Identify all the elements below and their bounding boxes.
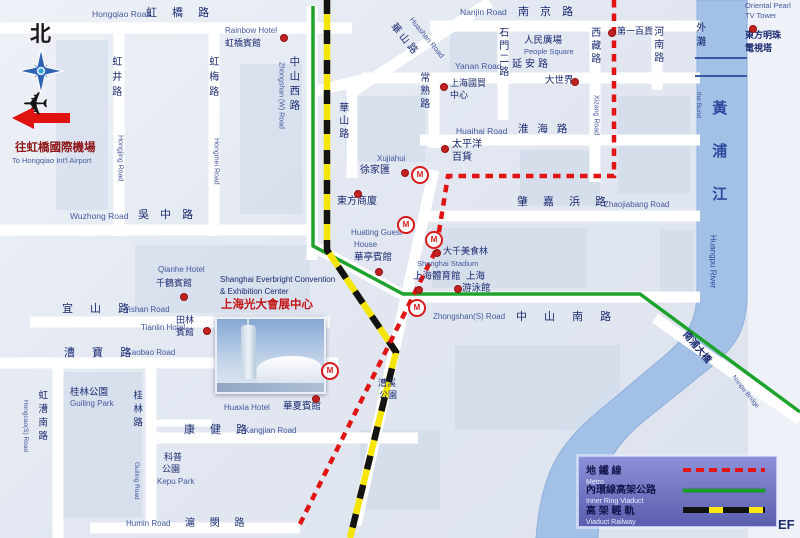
legend-row-rail: 高 架 輕 軌 Viaduct Railway — [586, 501, 769, 523]
legend-row-ring: 內環線高架公路 Inner Ring Viaduct — [586, 480, 769, 502]
watermark: EF — [778, 517, 795, 532]
road-label: Xizang Road — [592, 95, 600, 135]
poi-kepu-park-en: Kepu Park — [157, 478, 194, 487]
poi-pacific-cn1: 太平洋 — [452, 140, 482, 151]
road-label: 肇 嘉 浜 路 — [517, 197, 612, 209]
metro-station-icon: M — [397, 216, 415, 234]
poi-stadium-en: Shanghai Stadium — [417, 260, 478, 268]
poi-guilin-park-cn: 桂林公園 — [70, 388, 108, 398]
poi-dot — [749, 25, 757, 33]
poi-rainbow-hotel-cn: 虹橋賓館 — [225, 39, 261, 49]
legend-rail-en: Viaduct Railway — [586, 519, 769, 526]
legend-metro-cn: 地 鐵 線 — [586, 466, 622, 477]
poi-dot — [180, 293, 188, 301]
poi-everbright-en2: & Exhibition Center — [220, 288, 288, 297]
road-label: Kangjian Road — [244, 427, 296, 436]
poi-huating-en1: Huating Guest — [351, 229, 402, 238]
poi-bund-en: the Bund — [695, 92, 702, 118]
road-label: Humin Road — [126, 520, 170, 529]
road-label: Caobao Road — [126, 349, 175, 358]
poi-everbright-en1: Shanghai Everbright Convention — [220, 276, 335, 285]
poi-daqian: 大千美食林 — [443, 247, 488, 257]
poi-pool-cn1: 上海 — [466, 272, 485, 282]
poi-trade-center-cn2: 中心 — [450, 91, 468, 101]
road-label: 中 山 南 路 — [516, 312, 618, 324]
road-label: 桂林路 — [131, 390, 141, 431]
poi-dot — [441, 145, 449, 153]
poi-qianhe-en: Qianhe Hotel — [158, 266, 205, 275]
poi-huating-en2: House — [354, 241, 377, 250]
road-label: 康 健 路 — [184, 425, 253, 437]
poi-dot — [375, 268, 383, 276]
road-label: 虹梅路 — [206, 56, 217, 101]
road-label: 延安路 — [512, 60, 551, 71]
road-label: Guiling Road — [133, 462, 140, 500]
poi-qianhe-cn: 千鶴賓館 — [156, 279, 192, 289]
poi-people-square-cn: 人民廣場 — [524, 36, 562, 46]
road-label: 西藏路 — [588, 27, 599, 66]
poi-kepu-park-cn1: 科普 — [164, 453, 182, 463]
road-label: Hongcao(S) Road — [22, 400, 29, 452]
road-label: Yishan Road — [124, 306, 170, 315]
road-label: 華山路 — [336, 102, 347, 141]
poi-pacific-cn2: 百貨 — [452, 153, 472, 164]
poi-no1-store: 第一百貨 — [617, 27, 653, 37]
poi-tv-tower-en2: TV Tower — [745, 12, 777, 20]
poi-pool-cn2: 游泳館 — [462, 284, 491, 294]
poi-dot — [401, 169, 409, 177]
poi-guilin-park-en: Guiling Park — [70, 400, 114, 409]
photo-tower — [241, 325, 256, 379]
airplane-icon: ✈ — [22, 88, 49, 120]
poi-dot — [354, 190, 362, 198]
airport-label-cn: 往虹橋國際機場 — [15, 142, 96, 154]
poi-huaxia-en: Huaxia Hotel — [224, 404, 270, 413]
metro-station-icon: M — [321, 362, 339, 380]
legend-rail-line-sample — [683, 507, 765, 513]
road-label: 虹 橋 路 — [146, 8, 215, 20]
poi-dot — [608, 29, 616, 37]
poi-trade-center-cn1: 上海國貿 — [450, 79, 486, 89]
poi-oriental-store: 東方商廈 — [337, 197, 377, 208]
convention-center-photo — [215, 317, 326, 394]
poi-caoxi-park-cn1: 漕溪 — [378, 379, 396, 389]
road-label: 中山西路 — [288, 56, 299, 114]
map-legend: 地 鐵 線 Metro 內環線高架公路 Inner Ring Viaduct 高… — [578, 456, 777, 527]
road-label: Zhongshan (W) Road — [277, 62, 285, 129]
poi-huaxia-cn: 華夏賓館 — [283, 402, 321, 412]
metro-station-icon: M — [411, 166, 429, 184]
poi-dot — [280, 34, 288, 42]
poi-dot — [440, 83, 448, 91]
poi-people-square-en: People Square — [524, 48, 574, 56]
poi-caoxi-park-cn2: 公園 — [379, 391, 397, 401]
road-label: 虹漕南路 — [36, 390, 46, 444]
road-label: Hongqiao Road — [92, 10, 151, 19]
road-label: 石門二路 — [496, 27, 507, 79]
poi-dot — [415, 286, 423, 294]
road-label: Wuzhong Road — [70, 212, 128, 221]
poi-dot — [312, 395, 320, 403]
road-label: Yanan Road — [455, 62, 502, 71]
poi-kepu-park-cn2: 公園 — [162, 465, 180, 475]
poi-tianlin-cn2: 賓館 — [176, 328, 194, 338]
photo-ground — [217, 383, 324, 392]
road-label: 淮 海 路 — [518, 124, 570, 135]
metro-station-icon: M — [408, 299, 426, 317]
poi-dot — [454, 285, 462, 293]
poi-dot — [433, 249, 441, 257]
airport-label-en: To Hongqiao Int'l Airport — [12, 157, 91, 165]
poi-tianlin-cn1: 田林 — [176, 316, 194, 326]
poi-bund-cn: 外灘 — [693, 22, 704, 50]
poi-tv-tower-en1: Oriental Pearl — [745, 2, 791, 10]
legend-ring-line-sample — [683, 489, 765, 492]
road-label: Nanjin Road — [460, 8, 507, 17]
legend-metro-line-sample — [683, 468, 765, 472]
legend-ring-cn: 內環線高架公路 — [586, 485, 656, 496]
poi-stadium-cn: 上海體育館 — [413, 272, 461, 282]
poi-dot — [571, 78, 579, 86]
poi-tv-tower-cn2: 電視塔 — [745, 44, 772, 54]
river-name-en: Huangpu River — [708, 235, 717, 288]
road-label: Hongjing Road — [116, 135, 124, 181]
poi-dot — [203, 327, 211, 335]
river-name-cn: 黃浦江 — [710, 100, 726, 229]
poi-rainbow-hotel-en: Rainbow Hotel — [225, 27, 277, 36]
road-label: 常熟路 — [417, 72, 428, 111]
road-label: 吳 中 路 — [138, 210, 197, 222]
poi-xujiahui-cn: 徐家匯 — [360, 166, 390, 177]
road-label: 虹井路 — [109, 56, 120, 101]
road-label: 南 京 路 — [518, 7, 577, 19]
poi-great-world: 大世界 — [545, 76, 574, 86]
road-label: Huaihai Road — [456, 127, 508, 136]
north-label: 北 — [30, 24, 51, 47]
photo-exhibition-hall — [257, 356, 321, 383]
metro-station-icon: M — [425, 231, 443, 249]
road-label: Hongmei Road — [212, 138, 220, 185]
road-label: Zhaojiabang Road — [604, 201, 669, 210]
poi-xujiahui-en: Xujiahui — [377, 155, 405, 164]
shanghai-tourist-map: ✈ 地 鐵 線 Metro 內環線高架公路 Inner Ring Viaduct… — [0, 0, 800, 538]
legend-rail-cn: 高 架 輕 軌 — [586, 506, 634, 517]
road-label: Zhongshan(S) Road — [433, 313, 505, 322]
road-label: 滬 閔 路 — [185, 519, 251, 530]
poi-everbright-cn: 上海光大會展中心 — [221, 299, 313, 311]
poi-huating-cn: 華亭賓館 — [354, 253, 392, 263]
